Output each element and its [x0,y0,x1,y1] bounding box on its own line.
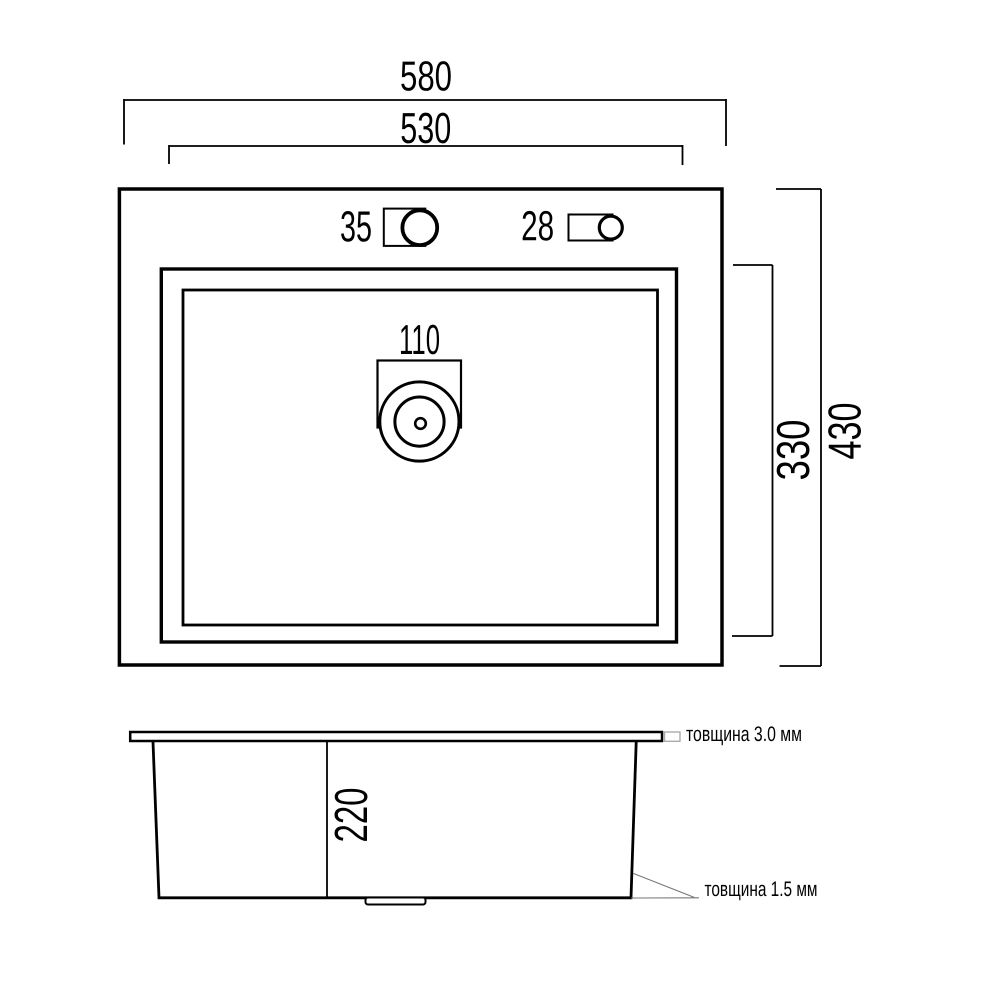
svg-text:110: 110 [399,316,440,363]
svg-text:220: 220 [325,788,377,843]
svg-text:товщина 1.5 мм: товщина 1.5 мм [704,878,817,901]
svg-text:28: 28 [521,202,554,249]
svg-text:580: 580 [400,52,452,99]
svg-text:товщина 3.0 мм: товщина 3.0 мм [686,723,802,746]
svg-text:330: 330 [767,420,819,481]
svg-text:35: 35 [340,203,372,251]
svg-text:430: 430 [819,403,871,460]
